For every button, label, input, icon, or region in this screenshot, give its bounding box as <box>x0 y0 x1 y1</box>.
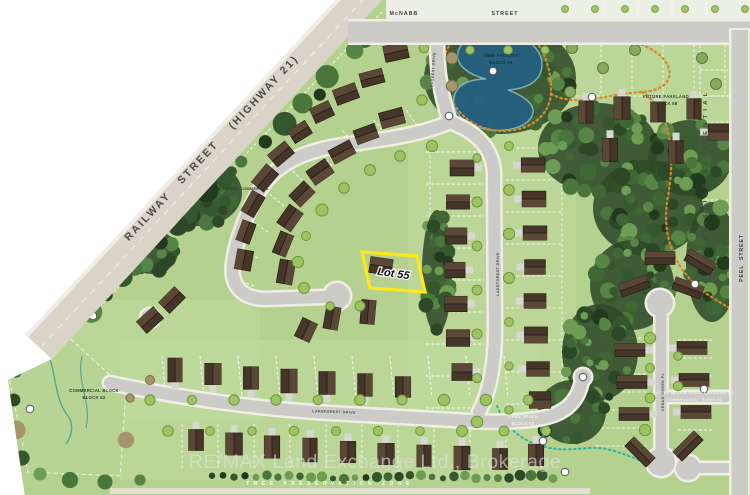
tree <box>586 360 593 367</box>
tree <box>259 135 272 148</box>
street-tree <box>480 394 491 405</box>
tree <box>715 245 728 258</box>
lakeforest-drive-mid-text: LAKEFOREST DRIVE <box>496 252 500 296</box>
house-roof <box>525 267 546 274</box>
buffer-tree <box>241 472 248 479</box>
street-tree <box>505 142 514 151</box>
tree <box>612 326 626 340</box>
house-roof <box>446 330 469 338</box>
tree <box>623 366 631 374</box>
buffer-tree <box>449 472 458 481</box>
buffer-tree <box>471 474 480 483</box>
street-tree <box>126 394 134 402</box>
street-tree <box>505 362 513 370</box>
house-roof <box>289 369 297 393</box>
tree <box>580 312 588 320</box>
street-tree <box>674 352 683 361</box>
buffer-tree <box>296 472 303 479</box>
house-roof <box>327 372 335 395</box>
tree <box>717 256 731 270</box>
tree <box>314 89 326 101</box>
peel-street-text: PEEL STREET <box>739 234 745 282</box>
street-tree <box>316 204 328 216</box>
tree <box>427 281 441 295</box>
street-tree <box>298 282 309 293</box>
street-tree <box>503 228 514 239</box>
house-roof <box>603 138 610 161</box>
house-roof <box>681 412 711 419</box>
street-tree <box>505 318 514 327</box>
street-tree <box>541 46 549 54</box>
tree <box>652 191 667 206</box>
existing-commercial-label: EXISTING COMMERCIAL <box>219 187 270 191</box>
strip-tree <box>622 6 629 13</box>
tree <box>561 367 571 377</box>
house-roof <box>619 408 649 415</box>
tree <box>630 238 639 247</box>
commercial-block-number: BLOCK 62 <box>82 395 105 400</box>
street-tree <box>673 381 682 390</box>
house-roof <box>522 199 546 207</box>
tree <box>23 345 37 359</box>
tree <box>534 94 544 104</box>
buffer-tree <box>274 474 281 481</box>
street-tree <box>187 395 196 404</box>
buffer-tree <box>230 473 237 480</box>
house-roof <box>452 364 472 372</box>
house-roof <box>527 369 550 376</box>
house-roof <box>403 377 411 398</box>
house-roof <box>450 160 474 168</box>
tree <box>643 202 654 213</box>
tree <box>566 338 576 348</box>
townhouse <box>645 252 675 265</box>
street-tree <box>523 395 533 405</box>
buffer-tree <box>483 474 490 481</box>
street-tree <box>504 185 515 196</box>
tree <box>595 254 610 269</box>
house-roof <box>617 376 647 383</box>
tree <box>156 248 166 258</box>
house-roof <box>687 99 694 120</box>
tree <box>427 220 440 233</box>
tree-preservation-zone-label: TREE PRESERVATION ZONE <box>246 481 414 487</box>
tree <box>616 213 628 225</box>
bottom-strip <box>110 488 590 494</box>
tree <box>10 366 21 377</box>
street-tree <box>446 52 458 64</box>
tree <box>578 127 594 143</box>
street-tree <box>472 197 482 207</box>
tree <box>578 184 592 198</box>
street-tree <box>472 241 482 251</box>
house-roof <box>524 301 546 308</box>
street-tree <box>395 151 406 162</box>
brokerage-watermark: RE/MAX Land Exchange Ltd., Brokerage <box>189 451 561 473</box>
tree <box>419 298 434 313</box>
tree <box>626 300 638 312</box>
tree <box>572 325 586 339</box>
street-tree <box>373 426 382 435</box>
tree <box>570 413 580 423</box>
mcnabb-street-type-label: STREET <box>491 11 518 17</box>
trail-marker <box>588 93 596 101</box>
cul-de-sac <box>676 456 700 480</box>
house-roof <box>445 262 465 270</box>
strip-tree <box>562 6 569 13</box>
tree <box>658 181 667 190</box>
trail-marker <box>579 373 587 381</box>
street-tree <box>313 395 323 405</box>
tree <box>570 431 583 444</box>
tree <box>647 271 655 279</box>
house-roof <box>614 97 622 119</box>
tree <box>598 360 608 370</box>
house-roof <box>213 363 221 384</box>
site-plan-map: RAILWAY STREET (HIGHWAY 21) McNABB STREE… <box>0 0 750 495</box>
house-roof <box>365 374 372 397</box>
strip-tree <box>682 6 689 13</box>
tree <box>434 252 445 263</box>
tree <box>7 421 26 440</box>
tree <box>151 262 166 277</box>
peel-street-label: PEEL STREET <box>739 234 745 282</box>
tree <box>8 394 21 407</box>
swm-facility-block-number: BLOCK 59 <box>489 60 512 65</box>
street-tree <box>471 416 483 428</box>
cul-de-sac <box>647 290 673 316</box>
buffer-tree <box>363 474 370 481</box>
strip-tree <box>742 6 749 13</box>
tree <box>631 132 643 144</box>
street-tree <box>248 427 256 435</box>
street-tree <box>426 140 437 151</box>
buffer-tree <box>394 472 403 481</box>
tree <box>704 247 714 257</box>
tree <box>430 323 442 335</box>
buffer-tree <box>429 474 436 481</box>
tree <box>62 472 78 488</box>
street-tree <box>417 95 427 105</box>
existing-residential-label: EXISTING RESIDENTIAL <box>703 89 709 240</box>
tree <box>719 274 727 282</box>
tree <box>33 467 46 480</box>
buffer-tree <box>253 474 260 481</box>
street-tree <box>472 373 481 382</box>
house-roof <box>708 132 732 140</box>
street-tree <box>499 426 509 436</box>
house-roof <box>175 358 182 382</box>
tree <box>578 144 588 154</box>
tree <box>598 402 610 414</box>
street-tree <box>644 332 655 343</box>
street-tree <box>472 329 482 339</box>
strip-tree <box>712 6 719 13</box>
tree <box>674 176 682 184</box>
trail-marker <box>489 67 497 75</box>
tree <box>686 157 698 169</box>
park-tree <box>697 53 708 64</box>
tree <box>609 287 618 296</box>
cedar-creek-place-label: CEDAR CREEK PL <box>661 372 665 411</box>
tree <box>713 200 729 216</box>
tree <box>710 166 721 177</box>
tree <box>435 266 444 275</box>
house-roof <box>523 233 547 240</box>
buffer-tree <box>440 475 446 481</box>
tree <box>579 164 596 181</box>
trail-marker <box>26 405 34 413</box>
buffer-tree <box>352 474 359 481</box>
buffer-tree <box>549 474 558 483</box>
house-roof <box>251 367 259 390</box>
tree <box>592 184 607 199</box>
street-tree <box>339 183 350 194</box>
open-space-label: OPEN SPACE <box>508 414 538 419</box>
street-tree <box>397 395 407 405</box>
street-tree <box>473 154 481 162</box>
townhouse-block-label: FUTURE MEDIUM DENSITY RESIDENTIAL <box>653 391 735 395</box>
house-roof <box>579 101 586 123</box>
tree <box>563 436 570 443</box>
tree <box>679 177 693 191</box>
park-tree <box>711 79 722 90</box>
tree <box>586 390 599 403</box>
tree <box>562 178 579 195</box>
tree <box>422 265 431 274</box>
tree <box>212 215 224 227</box>
park-tree <box>598 63 609 74</box>
tree <box>539 142 553 156</box>
buffer-tree <box>504 473 513 482</box>
street-tree <box>326 302 334 310</box>
street-tree <box>289 426 298 435</box>
tree <box>605 393 613 401</box>
trail-marker <box>445 112 453 120</box>
tree <box>561 111 572 122</box>
house-roof <box>669 141 676 164</box>
street-tree <box>472 285 482 295</box>
tree <box>626 193 636 203</box>
buffer-tree <box>384 472 393 481</box>
lakeforest-drive-mid-label: LAKEFOREST DRIVE <box>496 252 500 296</box>
open-space-block-number: BLOCK 60 <box>511 421 534 426</box>
house-roof <box>445 228 467 236</box>
tree <box>548 109 563 124</box>
street-tree <box>646 364 655 373</box>
site-plan-image: RAILWAY STREET (HIGHWAY 21) McNABB STREE… <box>0 0 750 495</box>
swm-facility-label: SWM FACILITY <box>484 53 518 58</box>
park-tree <box>565 87 576 98</box>
house-roof <box>615 344 645 351</box>
mcnabb-street-road <box>348 22 750 43</box>
tree <box>599 317 607 325</box>
tree <box>14 450 29 465</box>
tree <box>612 248 624 260</box>
tree <box>667 217 678 228</box>
trail-marker <box>561 468 569 476</box>
street-tree <box>541 426 550 435</box>
tree <box>562 67 573 78</box>
future-parkland-block-number: BLOCK 58 <box>654 101 677 106</box>
tree <box>134 474 145 485</box>
street-tree <box>505 406 513 414</box>
buffer-tree <box>209 473 215 479</box>
tree <box>635 208 643 216</box>
future-parkland-label: FUTURE PARKLAND <box>643 94 689 99</box>
buffer-tree <box>494 474 502 482</box>
street-tree <box>355 301 365 311</box>
street-tree <box>271 395 281 405</box>
existing-residential-text: EXISTING RESIDENTIAL <box>703 89 709 240</box>
tree <box>118 432 134 448</box>
street-tree <box>206 427 215 436</box>
house-roof <box>645 252 675 259</box>
house-roof <box>446 195 469 202</box>
street-tree <box>355 395 366 406</box>
trail-marker <box>691 280 699 288</box>
house <box>234 249 254 272</box>
tree <box>623 249 631 257</box>
tree <box>551 77 565 91</box>
tree <box>590 415 601 426</box>
house-roof <box>189 430 196 451</box>
trail-marker <box>539 437 547 445</box>
tree <box>651 141 664 154</box>
street-tree <box>466 46 474 54</box>
street-tree <box>331 426 340 435</box>
tree <box>602 117 614 129</box>
house-roof <box>445 296 467 304</box>
cedar-creek-place-text: CEDAR CREEK PL <box>661 372 665 411</box>
street-tree <box>446 80 457 91</box>
park-tree <box>630 45 641 56</box>
street-tree <box>438 394 449 405</box>
tree <box>565 153 574 162</box>
strip-tree <box>592 6 599 13</box>
commercial-block-label: COMMERCIAL BLOCK <box>69 388 119 393</box>
tree <box>687 233 696 242</box>
street-tree <box>416 427 425 436</box>
tree <box>614 168 631 185</box>
street-tree <box>504 273 515 284</box>
street-tree <box>456 425 467 436</box>
street-tree <box>229 395 239 405</box>
house-roof <box>521 165 545 172</box>
tree <box>546 159 561 174</box>
tree <box>97 474 112 489</box>
tree <box>218 206 228 216</box>
street-tree <box>163 426 174 437</box>
street-tree <box>365 165 376 176</box>
street-tree <box>639 424 650 435</box>
street-tree <box>145 395 155 405</box>
street-tree <box>292 256 303 267</box>
strip-tree <box>652 6 659 13</box>
tree <box>558 141 568 151</box>
bottom-band <box>110 488 590 494</box>
street-tree <box>145 375 154 384</box>
tree <box>667 198 679 210</box>
street-tree <box>302 232 311 241</box>
house-roof <box>524 335 547 343</box>
townhouse-block-number: (TOWNHOUSES) BLOCK 66 <box>666 398 722 402</box>
mcnabb-street-name-label: McNABB <box>390 11 419 17</box>
